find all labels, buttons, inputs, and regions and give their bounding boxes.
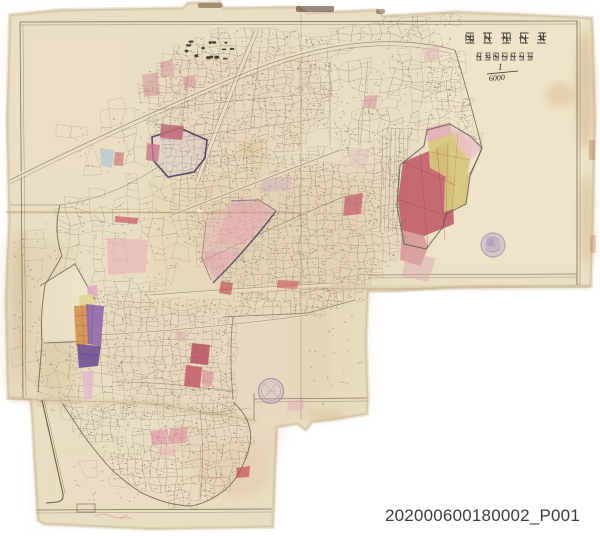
svg-text:1: 1 [498, 62, 503, 72]
svg-text:6000: 6000 [489, 73, 506, 83]
